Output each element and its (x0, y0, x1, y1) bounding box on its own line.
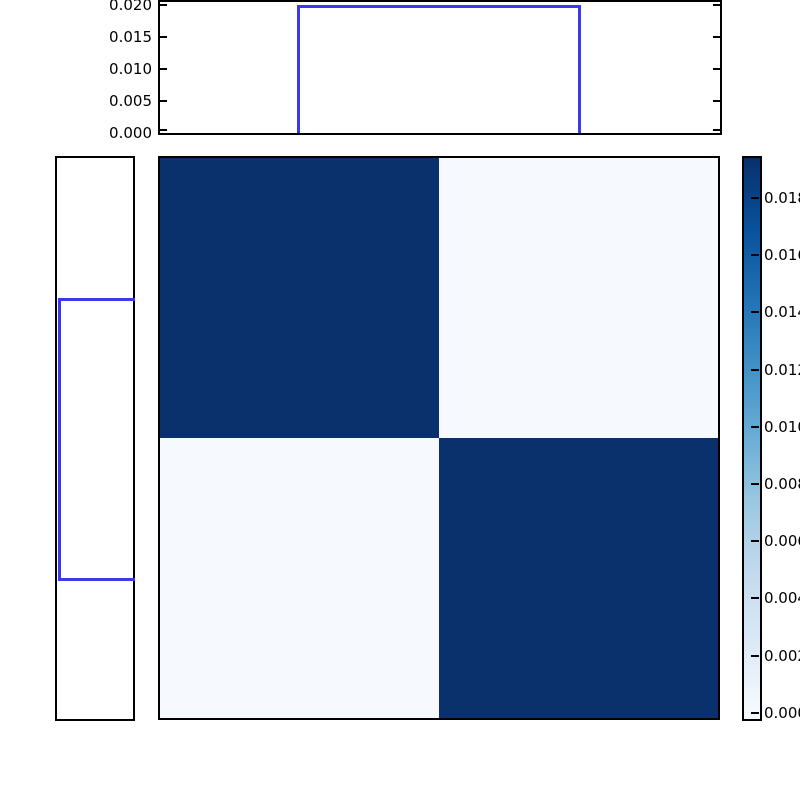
colorbar-tick (751, 369, 759, 371)
colorbar-tick (751, 483, 759, 485)
colorbar-tick-label: 0.010 (764, 418, 800, 436)
colorbar-tick-label: 0.002 (764, 647, 800, 665)
colorbar-tick-label: 0.004 (764, 589, 800, 607)
top-yaxis-tick-label: 0.000 (82, 124, 152, 142)
top-yaxis-tick (160, 100, 167, 102)
top-yaxis-tick-label: 0.010 (82, 60, 152, 78)
colorbar-tick-label: 0.018 (764, 189, 800, 207)
top-yaxis-tick (160, 4, 167, 6)
top-yaxis-tick-label: 0.005 (82, 92, 152, 110)
heatmap-cell-bottom-left (160, 438, 439, 718)
colorbar-tick-label: 0.008 (764, 475, 800, 493)
heatmap-grid (160, 158, 718, 718)
colorbar-tick (751, 254, 759, 256)
heatmap-cell-top-right (439, 158, 718, 438)
colorbar-tick (751, 597, 759, 599)
top-yaxis-tick-right (713, 36, 720, 38)
colorbar-tick-label: 0.000 (764, 704, 800, 722)
top-yaxis-tick-label: 0.020 (82, 0, 152, 14)
top-yaxis-tick-right (713, 68, 720, 70)
top-yaxis-tick-right (713, 100, 720, 102)
colorbar-tick (751, 655, 759, 657)
figure: 0.020 0.015 0.010 0.005 0.000 0.018 0.01… (0, 0, 800, 800)
colorbar-tick (751, 197, 759, 199)
top-yaxis-tick-right (713, 4, 720, 6)
top-yaxis-tick (160, 129, 167, 131)
colorbar (742, 156, 762, 721)
colorbar-tick (751, 540, 759, 542)
colorbar-gradient (744, 158, 760, 719)
heatmap-cell-bottom-right (439, 438, 718, 718)
top-histogram-step (297, 5, 581, 133)
left-histogram-step (58, 298, 135, 581)
colorbar-tick-label: 0.014 (764, 303, 800, 321)
top-yaxis-tick-right (713, 129, 720, 131)
colorbar-tick-label: 0.012 (764, 361, 800, 379)
colorbar-tick (751, 311, 759, 313)
colorbar-tick (751, 426, 759, 428)
top-yaxis-tick (160, 36, 167, 38)
heatmap-panel (158, 156, 720, 720)
colorbar-tick (751, 712, 759, 714)
heatmap-cell-top-left (160, 158, 439, 438)
colorbar-tick-label: 0.016 (764, 246, 800, 264)
colorbar-tick-label: 0.006 (764, 532, 800, 550)
top-yaxis-tick (160, 68, 167, 70)
top-yaxis-tick-label: 0.015 (82, 28, 152, 46)
